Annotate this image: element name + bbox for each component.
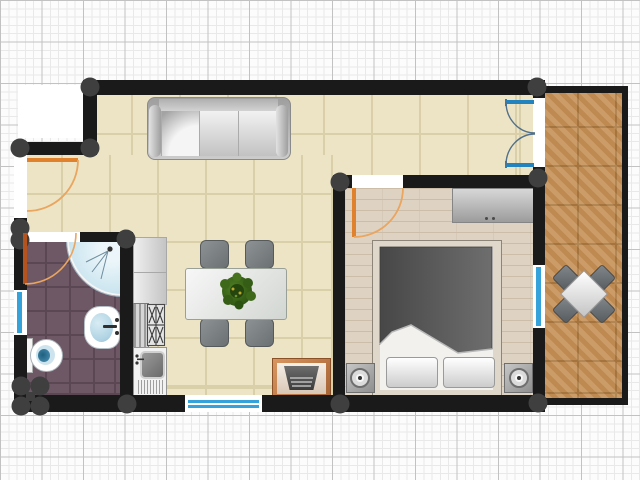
table-lamp-right	[509, 368, 529, 388]
bedroom-window[interactable]	[533, 265, 545, 328]
wall-joint	[11, 231, 30, 250]
balcony-rail-east	[622, 86, 628, 405]
sofa-armrest-right	[276, 105, 288, 157]
wall-joint	[81, 78, 100, 97]
balcony-floor	[545, 93, 622, 398]
basin-faucet	[103, 325, 117, 328]
entry-door-threshold	[14, 155, 27, 218]
living-room-window[interactable]	[185, 395, 262, 412]
pellet-stove-heater[interactable]	[272, 358, 331, 399]
toilet-water	[38, 349, 50, 362]
basin-knob	[115, 331, 119, 335]
wall-bedroom-divider	[333, 188, 345, 395]
dining-table[interactable]	[185, 268, 287, 320]
heater-vent	[284, 366, 319, 390]
floor-plan-canvas	[0, 0, 640, 480]
dining-chair[interactable]	[200, 318, 229, 347]
dining-chair[interactable]	[245, 240, 274, 269]
sofa-cushion	[238, 111, 277, 156]
bedroom-door-threshold	[352, 175, 403, 188]
basin-knob	[115, 318, 119, 322]
french-door-threshold	[533, 98, 545, 167]
entry-alcove	[18, 85, 83, 138]
wall-south-b	[262, 395, 545, 412]
toilet[interactable]	[30, 339, 63, 372]
double-bed[interactable]	[372, 240, 502, 398]
kitchen-sink-bowl	[140, 351, 165, 379]
dining-chair[interactable]	[200, 240, 229, 269]
balcony-rail-south	[545, 398, 628, 405]
wall-joint	[117, 230, 136, 249]
sofa-armrest-left	[149, 105, 161, 157]
wall-joint	[81, 139, 100, 158]
wall-joint	[11, 139, 30, 158]
wall-joint	[528, 78, 547, 97]
washbasin[interactable]	[84, 306, 120, 349]
kitchen-drainboard	[138, 380, 164, 394]
sofa-chaise-cushion	[161, 111, 199, 156]
bed-pillow	[443, 357, 495, 388]
wall-joint	[529, 394, 548, 413]
wall-bathroom-divider	[120, 232, 133, 395]
wall-joint	[118, 395, 137, 414]
bathroom-window[interactable]	[14, 290, 27, 335]
wall-joint	[331, 395, 350, 414]
bed-pillow	[386, 357, 438, 388]
balcony-rail-north	[545, 86, 628, 93]
wall-bedroom-north-b	[403, 175, 545, 188]
dining-chair[interactable]	[245, 318, 274, 347]
nightstand-right[interactable]	[504, 363, 533, 393]
stove-side-panel	[133, 303, 149, 349]
wall-north	[83, 80, 545, 95]
table-lamp-left	[350, 368, 370, 388]
kitchen-counter[interactable]	[133, 237, 167, 273]
kitchen-counter[interactable]	[133, 272, 167, 305]
sofa-cushion	[199, 111, 238, 156]
sofa-backrest	[159, 99, 278, 111]
wall-joint	[331, 173, 350, 192]
wall-joint-square	[26, 392, 35, 401]
wall-joint	[529, 169, 548, 188]
sofa[interactable]	[147, 97, 291, 160]
nightstand-left[interactable]	[346, 363, 375, 393]
bathroom-door-threshold	[27, 232, 80, 242]
kitchen-sink-unit[interactable]	[133, 347, 167, 397]
wall-east-c	[533, 328, 545, 395]
dresser[interactable]	[452, 188, 534, 223]
